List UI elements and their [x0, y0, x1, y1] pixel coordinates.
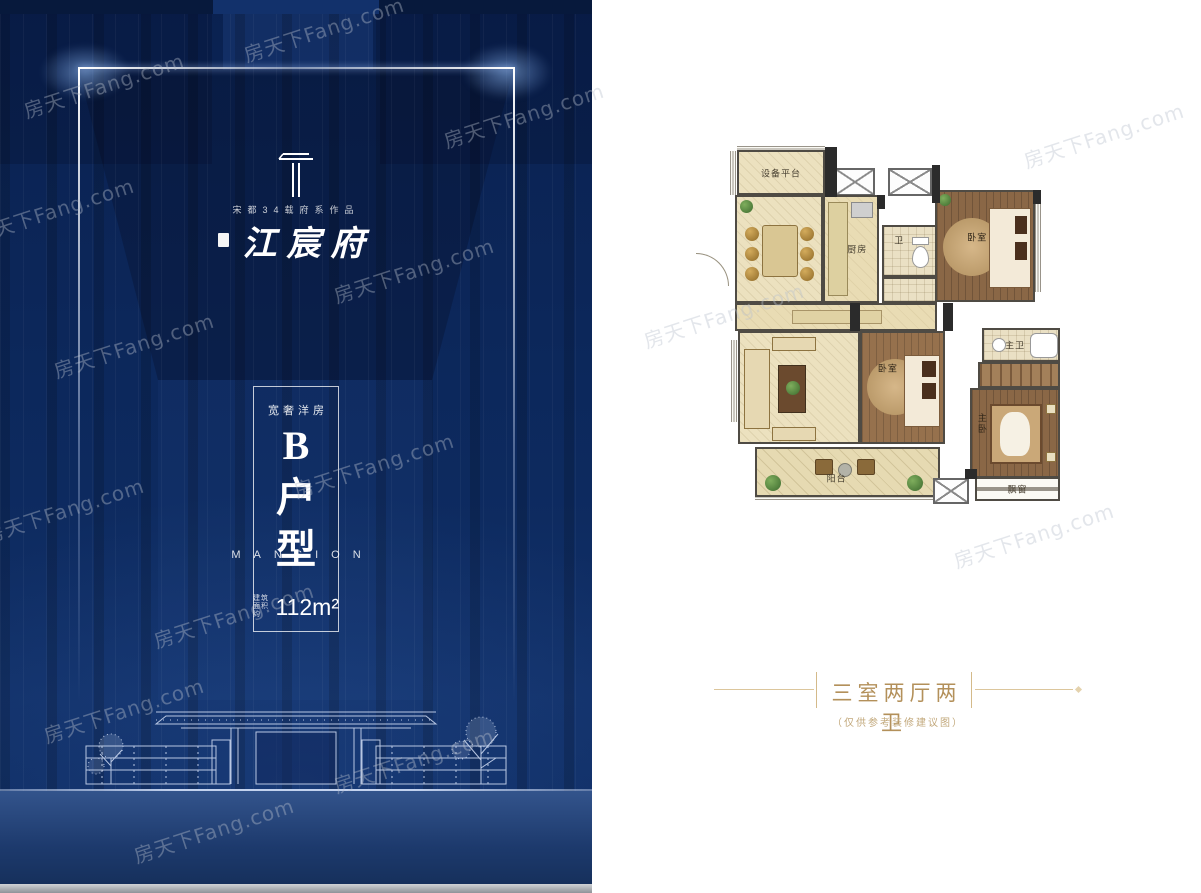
room-label: 飘窗 — [1007, 483, 1027, 496]
wardrobe — [978, 362, 1060, 388]
window — [730, 151, 736, 195]
balcony-chair — [857, 459, 875, 475]
room-label: 设备平台 — [761, 166, 801, 179]
dining-chair — [800, 227, 814, 241]
dining-chair — [745, 247, 759, 261]
hallway — [735, 303, 937, 331]
area-row: 建筑 面积约 112m² — [253, 592, 339, 622]
duvet — [1000, 412, 1030, 456]
pillow — [922, 383, 936, 399]
caption-diamond-icon — [1075, 686, 1082, 693]
area-prefix-line1: 建筑 — [253, 595, 272, 603]
pillow — [922, 361, 936, 377]
room-bath: 卫 — [882, 225, 937, 277]
bathtub — [1030, 333, 1058, 358]
tagline: 宽奢洋房 — [253, 402, 339, 418]
wall — [825, 147, 837, 197]
area-prefix-line2: 面积约 — [253, 603, 272, 619]
poster-shade-right — [380, 14, 592, 164]
room-living — [738, 331, 860, 444]
room-label: 主卫 — [1005, 339, 1025, 352]
area-value: 112m² — [276, 594, 340, 621]
nightstand — [1046, 404, 1056, 414]
room-bedroom-mid: 卧室 — [860, 331, 945, 444]
poster-panel: 宋都34载府系作品 江宸府 宽奢洋房 B 户 型 MANSION 建筑 面积约 … — [0, 0, 592, 893]
pillow — [1015, 242, 1027, 260]
room-master-bedroom: 主卧 — [970, 388, 1060, 478]
room-dining — [735, 195, 823, 303]
unit-char: 户 — [276, 472, 316, 524]
elevator-shaft — [888, 168, 932, 196]
dining-chair — [800, 247, 814, 261]
gate-building-illustration — [16, 688, 576, 790]
elevator-shaft — [835, 168, 875, 196]
room-kitchen: 厨房 — [823, 195, 879, 303]
caption-tick-left — [816, 672, 817, 708]
wall — [1033, 190, 1041, 204]
light-frame-left — [78, 67, 80, 702]
sofa — [744, 349, 770, 429]
poster-top-band — [0, 0, 592, 14]
kitchen-counter — [828, 202, 848, 296]
project-name: 江宸府 — [237, 216, 375, 265]
mansion-label: MANSION — [196, 549, 396, 561]
washbasin — [992, 338, 1006, 352]
room-label: 阳台 — [827, 471, 847, 484]
foreground-band — [0, 791, 592, 884]
room-master-bath: 主卫 — [982, 328, 1060, 362]
foyer — [882, 277, 937, 303]
unit-char: B — [283, 420, 310, 472]
brand-line: 宋都34载府系作品 — [146, 203, 446, 216]
dining-table — [762, 225, 798, 277]
floor-plan: 设备平台 厨房 卫 — [710, 145, 1082, 515]
poster-center-column — [223, 14, 373, 70]
wall — [877, 195, 885, 209]
plan-note: （仅供参考装修建议图） — [712, 714, 1084, 729]
plant — [907, 475, 923, 491]
toilet — [912, 246, 929, 268]
plant — [786, 381, 800, 395]
area-prefix: 建筑 面积约 — [253, 595, 272, 619]
elevator-shaft — [933, 478, 969, 504]
wall — [932, 165, 940, 203]
fridge — [851, 202, 873, 218]
sofa-side — [772, 337, 816, 351]
room-label: 卫 — [894, 234, 904, 247]
room-label: 主卧 — [976, 413, 989, 435]
room-label: 厨房 — [847, 243, 867, 256]
room-balcony: 阳台 — [755, 447, 940, 497]
plant — [939, 194, 951, 206]
window — [1035, 200, 1041, 292]
plant — [765, 475, 781, 491]
dining-chair — [745, 267, 759, 281]
room-label: 卧室 — [878, 361, 898, 374]
room-equipment-platform: 设备平台 — [737, 150, 825, 195]
wall — [850, 303, 860, 331]
pillow — [1015, 216, 1027, 234]
sofa-side — [772, 427, 816, 441]
entrance-door-arc — [696, 253, 729, 286]
toilet-tank — [912, 237, 929, 245]
plant — [740, 200, 753, 213]
caption-tick-right — [971, 672, 972, 708]
light-frame-right — [513, 67, 515, 702]
nightstand — [1046, 452, 1056, 462]
caption-line-right — [975, 689, 1073, 690]
seal-icon — [218, 233, 229, 247]
bottom-grey-bar — [0, 884, 592, 893]
wall — [943, 303, 953, 331]
room-bay-window: 飘窗 — [975, 477, 1060, 501]
light-frame-top — [78, 67, 515, 69]
caption-line-left — [714, 689, 814, 690]
wall — [965, 469, 977, 479]
room-label: 卧室 — [967, 231, 987, 244]
dining-chair — [800, 267, 814, 281]
hall-rug — [792, 310, 882, 324]
poster-shade-left — [0, 14, 212, 164]
window — [731, 340, 737, 422]
dining-chair — [745, 227, 759, 241]
room-bedroom-top: 卧室 — [935, 190, 1035, 302]
brand-T-logo-icon — [276, 150, 316, 200]
page: 宋都34载府系作品 江宸府 宽奢洋房 B 户 型 MANSION 建筑 面积约 … — [0, 0, 1201, 893]
plan-caption: 三室两厅两卫 — [712, 670, 1084, 710]
